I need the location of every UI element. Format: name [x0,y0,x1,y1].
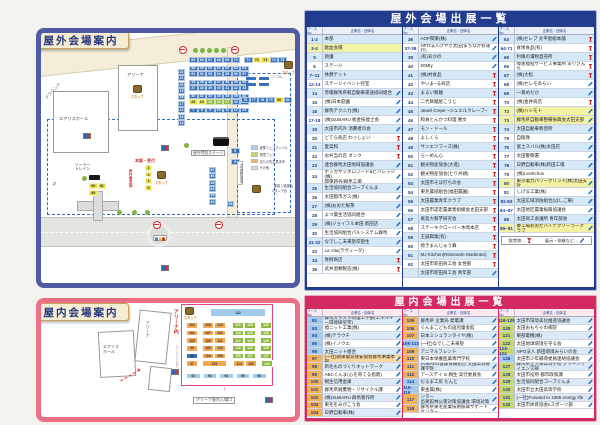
booth-number: 53 [206,71,215,77]
booth-number: 27 [223,99,232,105]
icon-cell [587,371,594,379]
tool-icon [588,379,593,384]
booth-no-cell: 117 [403,394,419,406]
booth-no-cell: 105 [403,317,419,325]
icon-cell [491,379,498,387]
icon-cell [395,220,402,229]
exhibitor-name-cell: 赤帽群馬県軽自動車運送協同組合 [323,89,395,98]
booth-no-cell: 14 [307,89,323,98]
table-row: 102(株)SUBARU 群馬製作所 [307,394,402,402]
table-row: 121東部電機(株) [499,332,594,340]
booth-no-cell: 61 [403,251,419,260]
arena-booth-132: 132 [210,308,266,317]
booth-no-cell: 74 [499,125,515,134]
booth-number: 81 [284,97,293,103]
table-row: 126太田市少年補導委員連絡協議会 [499,355,594,363]
table-row: 48よしくら [403,134,498,143]
booth-number: 15 [178,114,185,120]
staff-stamp-icon [284,61,293,69]
exhibitor-name-cell: 尾島大和芋研究会 [419,215,491,224]
exhibitor-name-cell: 太田商工会議所 青年部会 [515,215,587,224]
booth-89: 89 [89,190,98,196]
booth-no-cell: 112 [403,371,419,379]
indoor-map: エアリス ホール アリーナ アリーナ内 エントランスロビー スタッフ 132 1… [41,303,295,417]
icon-cell [491,197,498,206]
booth-no-cell: 73 [499,116,515,125]
exhibitor-name-cell: 東毛をみがこう会 [323,402,395,410]
table-row: 65利根の漬物直売所 [499,53,594,62]
stage-label: 屋外特設ステージ [191,150,225,156]
booth-number: 2 [145,165,152,171]
booth-number: 10 [215,108,224,114]
exhibitor-name-cell: (株)SUBARU 板金技能士会 [323,116,395,125]
booth-number: 80 [275,97,284,103]
booth-number: 9 [206,108,215,114]
table-row: 74太田自動車教習所 [499,125,594,134]
booth-no-cell: 60 [403,242,419,251]
arena-booth: 109 [214,353,226,360]
table-row: 66障害福祉サービス事業所 ありさんち [499,62,594,71]
icon-cell [491,98,498,107]
tool-icon [396,195,401,200]
table-header-row: ブースNo.企業名・団体名 [499,27,594,35]
arena-booth: 116 [232,345,244,352]
solar-train-label: ソーラー トレイン [75,163,90,172]
table-row: 63(株)セレブ 太平屋総本舗 [499,35,594,44]
icon-cell [587,363,594,371]
table-column: ブースNo.企業名・団体名105群馬県 企業局 発電課106ぐんまこどもの国児童… [403,309,499,418]
outdoor-exhibitor-table: ブースNo.企業名・団体名1-2本部3-4献血会場5救護6ステージ7~11休憩テ… [307,27,594,287]
tool-icon [492,326,497,331]
table-row: 42やいま~る商店 [403,80,498,89]
arena-booth: 97 [186,360,198,367]
food-icon [492,109,497,114]
table-row: 82-83太田広域消防組合(はしご車) [499,197,594,206]
tool-icon [492,349,497,354]
tool-icon [396,163,401,168]
tool-icon [396,318,401,323]
table-row: 55太田農業青年クラブ [403,197,498,206]
booth-no-cell: 126 [499,355,515,363]
table-row: 119·125太田市環境美化推進協議会 [499,317,594,325]
booth-no-cell: 59 [403,233,419,242]
exhibitor-name-cell: 青柳商店 [323,256,395,265]
table-row: 67(株)大松 [499,71,594,80]
booth-number: 25 [206,99,215,105]
icon-cell [587,35,594,44]
table-header-row: ブースNo.企業名・団体名 [499,309,594,317]
booth-no-cell: 115-116 [403,386,419,394]
exhibitor-name-cell: 太田広域消防組合(はしご車) [515,197,587,206]
icon-cell [491,89,498,98]
booth-no-cell: 76 [499,143,515,152]
mini-sl-icon [259,83,269,86]
booth-no-cell: 30 [307,229,323,238]
table-row: 26太田都市ガス(株) [307,193,402,202]
mini-sl-icon [259,77,269,80]
tool-icon [588,109,593,114]
booth-no-cell: 27 [307,202,323,211]
tool-icon [396,402,401,407]
booth-number: 65 [189,57,198,63]
table-row: 111SUBARU健康保険組合 太田高等看護学院 [403,363,498,371]
exhibitor-name-cell: (株)イノウエ [323,340,395,348]
table-row: 70(株)金井商店 [499,98,594,107]
booth-number: 88 [227,201,234,207]
table-row: 23連合群馬太田地域協議会 [307,161,402,170]
table-row: 37-38NPO法人けやき太田(まちなかお運行) [403,44,498,53]
icon-cell [395,379,402,387]
icon-cell [395,53,402,62]
tool-icon [492,372,497,377]
booth-no-cell: 118 [403,405,419,413]
booth-no-cell: 97 [307,355,323,363]
table-row: 108·113(一社)なでしこ未来塾 [403,340,498,348]
food-icon [492,154,497,159]
booth-number: 82 [209,199,216,205]
icon-cell [395,211,402,220]
booth-no-cell: 82-83 [499,197,515,206]
exhibitor-name-cell: 本部 [323,35,395,44]
icon-cell [587,325,594,333]
food-icon [588,64,593,69]
booth-no-cell: 67 [499,71,515,80]
arena-booth: 92 [186,373,201,379]
booth-strip-76-81: 767778798081 [241,97,292,103]
tool-icon [588,326,593,331]
tool-icon [396,341,401,346]
table-row: 98両毛ものづくりネットワーク [307,363,402,371]
icon-cell [395,152,402,161]
exhibitor-name-cell: (株)LeoEchos [515,170,587,179]
tool-icon [492,55,497,60]
booth-no-cell: 29 [307,220,323,229]
exhibitor-name-cell: NPO法人けやき太田(まちなかお運行) [419,44,491,53]
table-icon-legend: 飲食物…展示・体験など… [501,236,592,245]
booth-no-cell: 78 [499,161,515,170]
icon-cell [395,238,402,247]
arena-booth: 124 [244,330,256,337]
food-icon [396,136,401,141]
outdoor-exhibitor-panel: 屋外会場出展一覧 ブースNo.企業名・団体名1-2本部3-4献血会場5救護6ステ… [304,10,597,291]
column-header-booth-no: ブースNo. [499,309,515,316]
food-icon [492,82,497,87]
food-icon [588,73,593,78]
icon-cell [587,107,594,116]
exhibitor-name-cell: 太田市認定農業者組織会太田支部 [419,206,491,215]
tool-icon [588,395,593,400]
icon-cell [395,89,402,98]
icon-cell [587,71,594,80]
train-icon [89,175,100,180]
icon-cell [491,260,498,269]
map-legend: 産業フェスティバル環境フェアまちの先生見本市その他 [251,145,293,172]
booth-no-cell: 64-71 [499,44,515,53]
table-row: 34青柳商店 [307,256,402,265]
tool-icon [588,402,593,407]
no-entry-icon [179,46,187,54]
booth-number: 71 [244,57,253,63]
booth-number: 40 [215,85,224,91]
food-icon [492,118,497,123]
food-icon [492,235,497,240]
exhibitor-name-cell: お弁当の店 ダンク [323,152,395,161]
exhibitor-name-cell: まるい製麺 [419,89,491,98]
table-row: 14赤帽群馬県軽自動車運送協同組合 [307,89,402,98]
tool-icon [396,249,401,254]
booth-number: 51 [189,71,198,77]
food-icon [396,267,401,272]
arena-booth: 114 [233,360,245,367]
legend-swatch [251,159,258,164]
table-row: 54東毛農協組合(福田農園) [403,188,498,197]
booth-no-cell: 58 [403,224,419,233]
tool-icon [396,118,401,123]
icon-cell [491,386,498,394]
booth-number: 77 [250,97,259,103]
exhibitor-name-cell: 群馬テクニカ(株) [323,107,395,116]
legend-item: まちの先生見本市 [251,159,293,164]
table-row: 77太田警察署 [499,152,594,161]
tool-icon [588,364,593,369]
legend-item: 産業フェスティバル [251,145,293,150]
arena-booth: 99 [186,345,198,352]
table-row: 28よつ葉生活協同組合 [307,211,402,220]
booth-no-cell: 68 [499,80,515,89]
booth-number: 20 [178,82,185,88]
booth-number: 24 [198,99,207,105]
table-column: ブースNo.企業名・団体名1-2本部3-4献血会場5救護6ステージ7~11休憩テ… [307,27,403,287]
exhibitor-name-cell: 群馬大学大学院理工学部(エネルギー環境研究室) [323,317,395,325]
tool-icon [588,82,593,87]
table-row: 95(株)イノウエ [307,340,402,348]
table-row: 41(株)村食品 [403,71,498,80]
exhibitor-name-cell: 生活協同組合コープぐんま [515,379,587,387]
booth-no-cell: 94 [307,332,323,340]
exhibitor-name-cell: 生活協同組合パルシステム群馬 [323,229,395,238]
booth-no-cell: 28 [307,211,323,220]
table-row: 39(有)あかの [403,53,498,62]
booth-no-cell: 106 [403,325,419,333]
exhibitor-name-cell: 東毛農協組合(福田農園) [419,188,491,197]
arena-booth: 113 [214,322,226,329]
exhibitor-name-cell: 太田市環境美化推進協議会 [515,317,587,325]
icon-cell [491,317,498,325]
toilet-icon [161,265,169,271]
arena-booth: 94 [219,373,234,379]
tool-icon [492,37,497,42]
exhibitor-name-cell: 一真めだか [515,89,587,98]
tool-icon [492,387,497,392]
table-row: 49サンエツフーズ(株) [403,143,498,152]
table-header-row: ブースNo.企業名・団体名 [307,309,402,317]
booth-no-cell: 62 [403,260,419,269]
booth-number: 84 [209,186,216,192]
tool-icon [588,208,593,213]
booth-no-cell [403,269,419,278]
booth-no-cell: 70 [499,98,515,107]
tool-icon [588,341,593,346]
column-header-name: 企業名・団体名 [515,309,594,316]
exhibitor-name-cell: 東金属(株) [419,386,491,394]
table-row: 20どてら商店 わっしょい [307,134,402,143]
tool-icon [396,372,401,377]
indoor-exhibitor-table: ブースNo.企業名・団体名92群馬大学大学院理工学部(エネルギー環境研究室)93… [307,309,594,418]
booth-number: 89 [89,190,98,196]
icon-cell [587,152,594,161]
table-row: 52観光物産協会(とり弁鶏) [403,170,498,179]
exhibitor-name-cell: 太田市新田商工会 青年部 [419,269,491,278]
table-row: 43まるい製麺 [403,89,498,98]
column-header-name: 企業名・団体名 [323,27,402,34]
icon-cell [587,62,594,71]
table-row: 1-2本部 [307,35,402,44]
booth-no-cell: 65 [499,53,515,62]
booth-no-cell: 103 [307,402,323,410]
booth-number: 19 [178,88,185,94]
exhibitor-name-cell: (一社)なでしこ未来塾 [419,340,491,348]
booth-number: 57 [240,71,249,77]
booth-no-cell: 57 [403,215,419,224]
booth-number: 18 [178,95,185,101]
booth-no-cell: 109 [403,348,419,356]
icon-cell [395,202,402,211]
exhibitor-name-cell: (株)日本庭園 [323,98,395,107]
booth-number: 74 [270,57,279,63]
exhibitor-name-cell: 二代目麺屋こうじ [419,98,491,107]
icon-cell [491,152,498,161]
table-row: 47モン・ドール [403,125,498,134]
exhibitor-name-cell: ポッカサッポロフード&ビバレッジ(株) 関東越谷/群馬工場 [323,170,395,184]
table-row: 22お弁当の店 ダンク [307,152,402,161]
arena-inner-label: アリーナ内 [172,309,178,334]
stage-icon [213,137,229,146]
booth-no-cell: 56 [403,206,419,215]
exhibitor-name-cell: 利根の漬物直売所 [515,53,587,62]
icon-cell [395,265,402,274]
icon-cell [395,44,402,53]
exhibitor-name-cell: 東日本栄養医薬専門学校 [419,355,491,363]
arena-booth: 102 [186,322,198,329]
legend-label: 産業フェスティバル [260,145,289,150]
outdoor-table-title: 屋外会場出展一覧 [305,11,596,27]
tool-icon [396,186,401,191]
tool-icon [396,231,401,236]
arena-booth: 103 [202,360,227,367]
icon-cell [395,386,402,394]
table-column: ブースNo.企業名・団体名63(株)セレブ 太平屋総本舗64-71食栄食品(有)… [499,27,594,287]
arena-booth: 95 [236,373,251,379]
exhibitor-name-cell: 群馬県廃棄物・リサイクル課 [323,386,395,394]
exhibitor-name-cell: ステージイベント控室 [323,80,395,89]
icon-cell [491,394,498,406]
column-header-name: 企業名・団体名 [419,27,498,34]
legend-label: 環境フェア [260,152,276,157]
pedestrian-zone-label: 歩行者天国 [129,169,133,187]
icon-cell [395,134,402,143]
column-header-booth-no: ブースNo. [307,309,323,316]
traffic-light-icon [153,235,167,241]
table-row: 101群馬県廃棄物・リサイクル課 [307,386,402,394]
table-row: 17-18(株)SUBARU 板金技能士会 [307,116,402,125]
food-icon [588,100,593,105]
icon-cell [395,409,402,417]
toilet-icon [265,397,273,403]
icon-cell [491,332,498,340]
booth-no-cell: 92 [307,317,323,325]
icon-cell [395,363,402,371]
outdoor-map-panel: エアリスホール アリーナ スタッフ グラウンド P 65666768697058… [36,28,300,288]
tool-icon [396,326,401,331]
staff-label: スタッフ [155,180,168,185]
table-row: 46和食とんかつ料理 勝文 [403,116,498,125]
booth-no-cell: 102 [307,394,323,402]
arena-booth: 125 [244,322,256,329]
booth-number: 38 [198,85,207,91]
toilet-icon [161,145,169,151]
exhibitor-name-cell: 和食とんかつ料理 勝文 [419,116,491,125]
arena-booth-grid: スタッフ 132 1021081131191251311011071121181… [181,304,273,386]
booth-no-cell: 15 [307,98,323,107]
booth-no-cell: 119·125 [499,317,515,325]
icon-cell [491,134,498,143]
icon-cell [395,80,402,89]
tool-icon [588,163,593,168]
column-header-booth-no: ブースNo. [499,27,515,34]
booth-no-cell: 89~91 [499,224,515,233]
food-icon [492,262,497,267]
staff-label: スタッフ [131,94,144,99]
table-row: 36AOP関東(株) [403,35,498,44]
table-row: 103東毛をみがこう会 [307,402,402,410]
exhibitor-name-cell: 救護 [323,53,395,62]
booth-no-cell: 49 [403,143,419,152]
tool-icon [580,238,585,243]
booth-no-cell: 129 [499,379,515,387]
exhibitor-name-cell: 自衛隊 [515,134,587,143]
booth-no-cell: 53 [403,179,419,188]
icon-cell [491,53,498,62]
building-aeris-hall [53,91,109,153]
exhibitor-name-cell: やいま~る商店 [419,80,491,89]
tool-icon [396,91,401,96]
table-row: 53太田市そば打ちの会 [403,179,498,188]
icon-cell [395,332,402,340]
tool-icon [588,356,593,361]
booth-no-cell: 16 [307,107,323,116]
entrance-label: アリーナ屋内入場口 [193,397,235,404]
booth-number: 87 [209,167,216,173]
food-icon [492,253,497,258]
icon-cell [587,379,594,387]
arena-row: 100106111117123129 [186,337,273,344]
booth-no-cell: 123-124 [499,348,515,356]
column-header-booth-no: ブースNo. [307,27,323,34]
table-row: 50らーめん心 [403,152,498,161]
exhibitor-name-cell: モン・ドール [419,125,491,134]
outline-arena [134,309,171,364]
arena-booth: 108 [202,322,214,329]
legend-item: 環境フェア [251,152,293,157]
exhibitor-name-cell: 桐生信用金庫 [323,379,395,387]
indoor-map-title: 屋内会場案内 [41,303,129,321]
tool-icon [396,364,401,369]
booth-number: 90 [89,183,98,189]
icon-cell [587,224,594,233]
exhibitor-name-cell: (株)SUBARU 群馬製作所 [323,394,395,402]
arena-booth: 111 [214,337,226,344]
table-row: 88太田商工会議所 青年部会 [499,215,594,224]
